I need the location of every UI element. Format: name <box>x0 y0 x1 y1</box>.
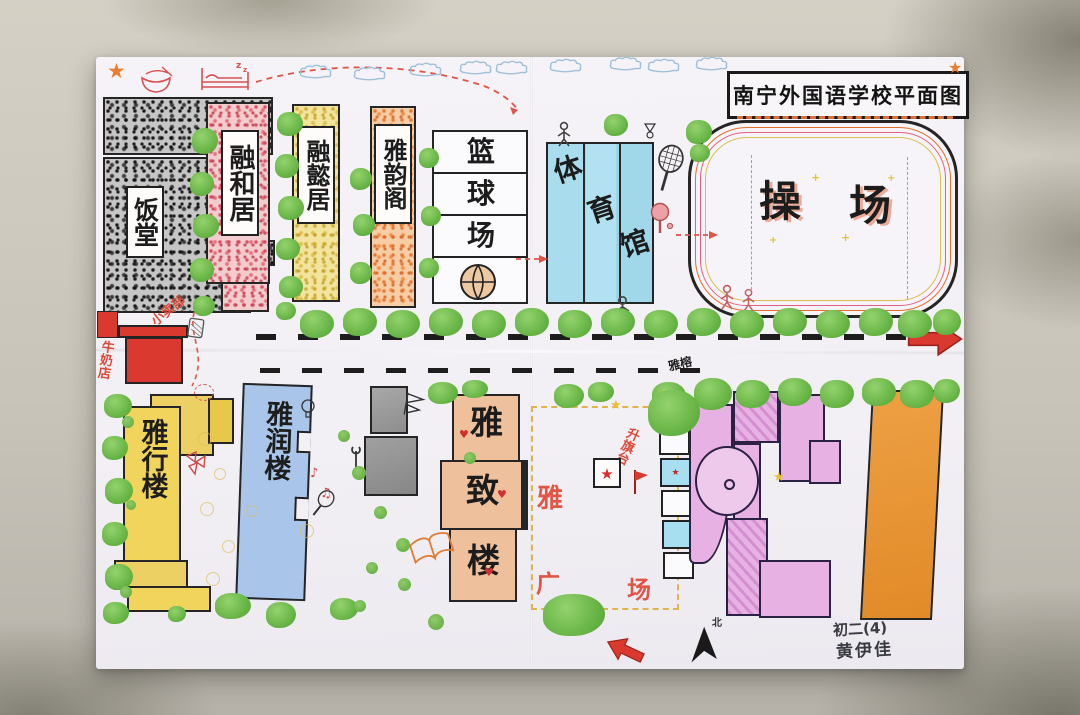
map-title: 南宁外国语学校平面图 <box>733 80 963 110</box>
flag-book-icon <box>400 390 428 420</box>
track-ring-yellow <box>705 137 941 301</box>
sparkle-icon: + <box>841 231 850 244</box>
track-dashed-line <box>751 155 752 295</box>
cloud-icon <box>646 58 682 74</box>
gym-char-1: 体 <box>550 152 585 187</box>
cloud-icon <box>408 62 444 78</box>
cloud-icon <box>298 64 334 80</box>
pink-complex-rotunda[interactable] <box>695 446 759 516</box>
yarun-lou-label: 雅润楼 <box>261 400 291 482</box>
signature-name: 黄伊佳 <box>835 635 893 663</box>
gym-panel-line <box>583 144 585 302</box>
map-title-box: 南宁外国语学校平面图 <box>727 71 969 119</box>
north-label: 北 <box>712 614 722 629</box>
pink-complex-lower-block <box>759 560 831 618</box>
sparkle-icon: + <box>769 235 777 246</box>
plaza-char-1: 雅 <box>537 478 563 515</box>
red-flag-icon <box>630 468 650 496</box>
building-yazhi-block2[interactable]: 致 <box>440 460 528 530</box>
yayun-ge-label-box: 雅韵阁 <box>374 124 412 224</box>
court-divider <box>434 214 526 216</box>
kiosk-small-block[interactable] <box>97 311 118 338</box>
gym-panel-line <box>619 144 621 302</box>
court-divider <box>434 172 526 174</box>
building-ronghe-ju-foot[interactable] <box>221 282 269 312</box>
track-dashed-line <box>907 157 908 299</box>
ronghe-ju-label: 融和居 <box>227 144 253 222</box>
spiral-doodle-icon <box>222 540 235 553</box>
dashed-circle-doodle <box>194 384 214 401</box>
heart-icon: ♥ <box>497 488 507 501</box>
playground-char-2: 场 <box>849 185 891 227</box>
dashed-arrow-to-gym <box>514 252 550 266</box>
svg-text:z: z <box>243 66 247 74</box>
shrub-dot-icon <box>396 538 410 552</box>
cloud-icon <box>494 60 530 76</box>
kiosk-building[interactable] <box>125 337 183 384</box>
star-icon: ★ <box>610 398 622 413</box>
plaza-char-2: 广 <box>536 564 560 599</box>
basketball-icon <box>458 262 498 302</box>
title-star-icon: ★ <box>948 58 962 77</box>
cloud-icon <box>548 58 584 74</box>
snack-bag-icon <box>186 314 206 340</box>
building-yazhi-block3[interactable]: 楼 <box>449 528 517 602</box>
cloud-icon <box>608 56 644 72</box>
spiral-doodle-icon <box>198 432 212 446</box>
playground-track[interactable]: 操 场 + + + + <box>688 120 958 318</box>
shrub-dot-icon <box>338 430 350 442</box>
gym-char-2: 育 <box>584 192 619 227</box>
music-note-icon: ♪ <box>310 466 318 481</box>
flag-platform-box[interactable]: ★ <box>593 458 621 488</box>
spiral-doodle-icon <box>200 502 214 516</box>
road-dashed-centerline-lower <box>260 368 704 373</box>
shrub-dot-icon <box>464 452 476 464</box>
title-underline-dashes <box>737 116 953 119</box>
spiral-doodle-icon <box>246 505 258 517</box>
shrub-dot-icon <box>352 466 366 480</box>
yayun-ge-label: 雅韵阁 <box>381 138 405 210</box>
pink-complex-right-small <box>809 440 841 484</box>
rice-bowl-icon <box>136 64 176 96</box>
yazhi-char-2: 致 <box>466 474 499 507</box>
rongyi-ju-label: 融懿居 <box>304 139 328 211</box>
spiral-doodle-icon <box>300 524 314 538</box>
basketball-court[interactable]: 篮 球 场 <box>432 130 528 304</box>
building-orange-tall[interactable] <box>860 390 944 620</box>
gray-building-large[interactable] <box>364 436 418 496</box>
dining-hall-label-box: 饭堂 <box>126 186 164 258</box>
playground-char-1: 操 <box>759 181 801 223</box>
court-divider <box>434 256 526 258</box>
sparkle-icon: ★ <box>773 470 785 485</box>
sparkle-icon: + <box>811 171 820 184</box>
gymnasium[interactable]: 体 育 馆 <box>546 142 654 304</box>
shuttlecock-icon <box>642 122 658 140</box>
cloud-icon <box>458 60 494 76</box>
heart-icon: ♥ <box>459 428 469 441</box>
shrub-dot-icon <box>398 578 411 591</box>
yazhi-char-1: 雅 <box>470 406 503 439</box>
heart-icon: ♥ <box>484 566 494 579</box>
yaxing-lou-label: 雅行楼 <box>139 418 166 499</box>
basketball-court-char-3: 场 <box>467 222 495 250</box>
runner-stickfigure-icon <box>719 285 735 311</box>
shrub-dot-icon <box>354 600 366 612</box>
rotunda-center-dot <box>724 479 735 490</box>
spiral-doodle-icon <box>206 572 220 586</box>
spiral-doodle-icon <box>214 468 226 480</box>
shrub-dot-icon <box>126 500 136 510</box>
ronghe-ju-label-box: 融和居 <box>221 130 259 236</box>
dining-hall-label: 饭堂 <box>133 197 158 247</box>
cloud-icon <box>352 66 388 82</box>
shrub-dot-icon <box>366 562 378 574</box>
photo-background: 南宁外国语学校平面图 ★ ★ zz 饭堂 融和居 融懿居 雅韵阁 篮 球 <box>0 0 1080 715</box>
pingpong-paddle-icon <box>648 202 674 236</box>
star-icon: ★ <box>107 59 126 83</box>
shrub-dot-icon <box>428 614 444 630</box>
shrub-dot-icon <box>374 506 387 519</box>
cloud-icon <box>694 56 730 72</box>
sparkle-icon: + <box>887 173 895 184</box>
plaza-tile-white <box>661 490 692 517</box>
lightbulb-icon <box>300 398 316 422</box>
shrub-dot-icon <box>120 586 132 598</box>
north-compass-arrow-icon <box>688 624 718 664</box>
badminton-player-icon <box>556 122 572 148</box>
bed-icon: zz <box>198 60 252 96</box>
plaza-tile-blue: ★ <box>660 458 691 487</box>
shrub-dot-icon <box>122 416 134 428</box>
basketball-court-char-1: 篮 <box>467 138 495 166</box>
basketball-court-char-2: 球 <box>467 180 495 208</box>
plaza-char-3: 场 <box>627 570 651 605</box>
red-pinwheel-icon <box>183 450 209 480</box>
svg-text:z: z <box>236 61 241 71</box>
yarun-notch <box>296 431 311 453</box>
dashed-arrow-to-track <box>674 228 720 242</box>
